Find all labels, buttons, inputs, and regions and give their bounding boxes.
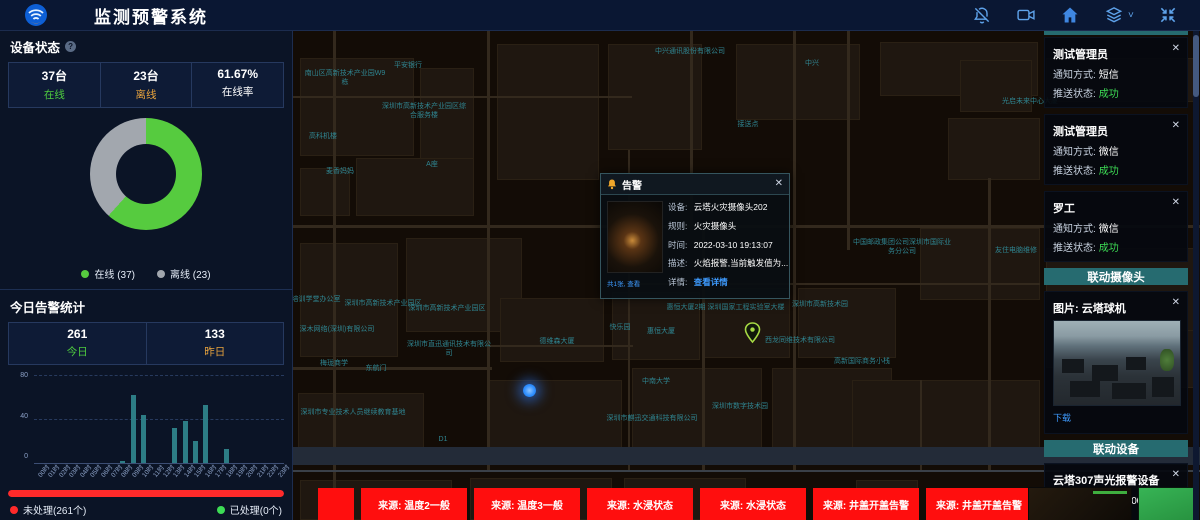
notify-card-title: 测试管理员 [1053, 46, 1179, 62]
map-building [948, 118, 1040, 180]
ytick-label: 0 [24, 453, 28, 460]
unhandled-progress-bar [8, 490, 284, 497]
bottom-alert-tile[interactable]: 来源: 温度2一般 [361, 488, 467, 520]
close-icon[interactable] [1172, 298, 1180, 308]
alarm-snapshot-image[interactable] [607, 201, 663, 273]
app-logo [24, 3, 48, 27]
hour-bar [120, 461, 125, 463]
legend-item: 离线 (23) [157, 266, 211, 281]
notify-card: 测试管理员 通知方式:短信 推送状态:成功 [1044, 37, 1188, 108]
alarm-image-caption-link[interactable]: 共1张, 查看 [607, 278, 661, 288]
hour-bar-slot [65, 375, 75, 463]
map-building [736, 44, 860, 120]
stat-value: 133 [147, 327, 284, 341]
linked-devices-header: 联动设备 [1044, 440, 1188, 457]
device-location-marker[interactable] [523, 384, 536, 397]
chevron-down-icon: ˅ [1128, 10, 1134, 21]
alarm-pin-icon[interactable] [744, 322, 761, 344]
row-label: 推送状态: [1053, 166, 1096, 177]
map-building [356, 158, 474, 216]
alarm-bell-icon [607, 179, 617, 190]
bottom-alert-tile[interactable]: 来源: 井盖开盖告警 [926, 488, 1032, 520]
home-icon[interactable] [1060, 5, 1080, 25]
alarm-detail-rows: 设备: 云塔火灾摄像头202 规则: 火灾摄像头 时间: 2022-03-10 … [668, 201, 788, 288]
alarm-popup-body: 共1张, 查看 设备: 云塔火灾摄像头202 规则: 火灾摄像头 时间: [601, 195, 789, 294]
map-building [300, 243, 398, 357]
stat-cell: 61.67% 在线率 [191, 63, 283, 107]
hour-bar-slot [242, 375, 252, 463]
device-donut [90, 118, 202, 230]
stat-label: 离线 [101, 87, 192, 102]
hour-bar [193, 441, 198, 463]
legend-text: 离线 (23) [170, 266, 211, 281]
help-icon[interactable] [65, 41, 76, 52]
hour-bar-slot [34, 375, 44, 463]
bottom-alert-tile[interactable] [318, 488, 354, 520]
close-icon[interactable] [1172, 44, 1180, 54]
row-value: 短信 [1099, 70, 1119, 81]
ytick-label: 40 [20, 413, 28, 420]
alarm-image-column: 共1张, 查看 [607, 201, 661, 288]
hour-bar-slot [201, 375, 211, 463]
scrollbar-thumb[interactable] [1193, 35, 1199, 97]
notify-card-row: 推送状态:成功 [1053, 162, 1179, 177]
map-building [300, 168, 350, 216]
hour-bar-slot [180, 375, 190, 463]
alarm-detail-value: 火灾摄像头 [694, 221, 737, 231]
unhandled-legend: 未处理(261个) [10, 502, 86, 517]
hour-bar-slot [274, 375, 284, 463]
donut-legend: 在线 (37) 离线 (23) [0, 266, 292, 281]
hour-bar-slot [169, 375, 179, 463]
alarm-detail-value: 查看详情 [694, 277, 728, 287]
alarm-popup: 告警 共1张, 查看 设备: 云塔火灾摄像头202 规则: 火灾摄像头 [600, 173, 790, 299]
notify-card-row: 通知方式:微信 [1053, 220, 1179, 235]
notify-card-row: 推送状态:成功 [1053, 85, 1179, 100]
alarm-detail-value: 2022-03-10 19:13:07 [694, 240, 773, 250]
hour-chart-yaxis: 80400 [8, 375, 28, 463]
hour-bar-slot [222, 375, 232, 463]
map-building [420, 68, 474, 162]
top-header: 监测预警系统 [0, 0, 1200, 31]
alarm-detail-row: 描述: 火焰报警,当前触发值为... [668, 258, 788, 268]
notify-card-list: 测试管理员 通知方式:短信 推送状态:成功 [1044, 37, 1188, 262]
device-status-stats: 37台 在线 23台 离线 61.67% 在线率 [8, 62, 284, 108]
map-road [292, 367, 492, 370]
progress-legend: 未处理(261个) 已处理(0个) [10, 502, 282, 517]
hour-bar [141, 415, 146, 463]
video-camera-icon[interactable] [1016, 5, 1036, 25]
unhandled-dot [10, 506, 18, 514]
camera-card: 图片: 云塔球机 下载 [1044, 291, 1188, 434]
map-building [632, 368, 762, 450]
unhandled-progress-fill [8, 490, 284, 497]
alarm-detail-row: 设备: 云塔火灾摄像头202 [668, 202, 788, 212]
map-building [920, 228, 1040, 300]
row-value: 成功 [1099, 89, 1119, 100]
close-icon[interactable] [1172, 121, 1180, 131]
row-value: 成功 [1099, 166, 1119, 177]
map-road [847, 30, 850, 250]
hour-bar-slot [211, 375, 221, 463]
video-thumbnail-green[interactable] [1138, 487, 1198, 520]
map-building [488, 380, 622, 450]
hour-bar-slot [44, 375, 54, 463]
stat-value: 261 [9, 327, 146, 341]
map-building [960, 60, 1032, 112]
hour-bar [203, 405, 208, 463]
row-label: 通知方式: [1053, 147, 1096, 158]
row-label: 通知方式: [1053, 224, 1096, 235]
stat-value: 61.67% [192, 67, 283, 81]
stat-cell: 133 昨日 [146, 323, 284, 364]
legend-item: 在线 (37) [81, 266, 135, 281]
hour-bar-slot [86, 375, 96, 463]
video-thumbnail-dark[interactable] [1028, 487, 1132, 520]
hour-bar-slot [117, 375, 127, 463]
hour-bar-slot [76, 375, 86, 463]
hour-bar [224, 449, 229, 463]
alarm-detail-label: 详情: [668, 277, 687, 287]
device-status-title: 设备状态 [10, 37, 60, 56]
row-value: 微信 [1099, 147, 1119, 158]
hour-bar [131, 395, 136, 463]
stat-value: 23台 [101, 67, 192, 84]
notify-card-row: 通知方式:微信 [1053, 143, 1179, 158]
hour-bar-slot [97, 375, 107, 463]
header-icon-group: ˅ [972, 0, 1178, 30]
alarm-detail-row: 时间: 2022-03-10 19:13:07 [668, 240, 788, 250]
hour-bar [183, 421, 188, 463]
map-road [988, 178, 991, 470]
device-card-title: 云塔307声光报警设备 [1053, 472, 1179, 488]
bottom-alert-tile[interactable]: 来源: 水浸状态 [700, 488, 806, 520]
download-link[interactable]: 下载 [1053, 411, 1071, 424]
row-label: 推送状态: [1053, 243, 1096, 254]
notify-card-row: 推送状态:成功 [1053, 239, 1179, 254]
notify-card: 测试管理员 通知方式:微信 推送状态:成功 [1044, 114, 1188, 185]
hour-bar-chart: 80400 00时01时02时03时04时05时06时07时08时09时10时1… [8, 375, 284, 482]
map-road [488, 345, 633, 347]
map-building [497, 44, 599, 180]
alarm-detail-value: 火焰报警,当前触发值为... [694, 258, 788, 268]
today-alarm-stats: 261 今日 133 昨日 [8, 322, 284, 365]
left-panel: 设备状态 37台 在线 23台 离线 61.67% 在线率 [0, 30, 293, 520]
alarm-detail-label: 设备: [668, 202, 687, 212]
hour-bar-plot [34, 375, 284, 464]
bottom-alert-tile[interactable]: 来源: 温度3一般 [474, 488, 580, 520]
alarm-detail-label: 描述: [668, 258, 687, 268]
notify-card-title: 罗工 [1053, 200, 1179, 216]
bottom-alert-tile[interactable]: 来源: 井盖开盖告警 [813, 488, 919, 520]
hour-bar-slot [159, 375, 169, 463]
stat-label: 在线 [9, 87, 100, 102]
map-building [798, 288, 896, 358]
scrollbar-track[interactable] [1193, 31, 1199, 520]
alarm-detail-label: 时间: [668, 240, 687, 250]
hour-bar [172, 428, 177, 463]
notification-off-icon[interactable] [972, 5, 992, 25]
notify-card-title: 测试管理员 [1053, 123, 1179, 139]
hour-bar-slot [128, 375, 138, 463]
alarm-popup-header: 告警 [601, 174, 789, 195]
row-value: 微信 [1099, 224, 1119, 235]
stat-label: 昨日 [147, 344, 284, 359]
stat-cell: 23台 离线 [100, 63, 192, 107]
row-value: 成功 [1099, 243, 1119, 254]
row-label: 通知方式: [1053, 70, 1096, 81]
hour-bar-slot [232, 375, 242, 463]
unhandled-label: 未处理(261个) [23, 502, 86, 517]
handled-legend: 已处理(0个) [217, 502, 282, 517]
bottom-alert-tile[interactable]: 来源: 水浸状态 [587, 488, 693, 520]
handled-label: 已处理(0个) [230, 502, 282, 517]
right-panel: 测试管理员 通知方式:短信 推送状态:成功 [1044, 30, 1188, 520]
map-building [300, 58, 414, 156]
legend-text: 在线 (37) [94, 266, 135, 281]
hour-bar-slot [107, 375, 117, 463]
stat-value: 37台 [9, 67, 100, 84]
alarm-detail-row: 规则: 火灾摄像头 [668, 221, 788, 231]
hour-bar-slot [253, 375, 263, 463]
layers-icon[interactable]: ˅ [1104, 5, 1134, 25]
legend-dot [157, 270, 165, 278]
camera-card-title: 图片: 云塔球机 [1053, 300, 1179, 316]
stat-cell: 37台 在线 [9, 63, 100, 107]
map-building [500, 298, 604, 362]
legend-dot [81, 270, 89, 278]
app-root: 南山区高新技术产业园W9栋 平安银行 深圳市高新技术产业园区综合服务楼 高科机楼… [0, 0, 1200, 520]
hour-xlabels: 00时01时02时03时04时05时06时07时08时09时10时11时12时1… [34, 464, 284, 482]
device-donut-wrap [0, 116, 292, 262]
linked-cameras-header: 联动摄像头 [1044, 268, 1188, 285]
stat-cell: 261 今日 [9, 323, 146, 364]
close-icon[interactable] [775, 179, 783, 189]
stat-label: 今日 [9, 344, 146, 359]
map-road [292, 96, 632, 98]
notify-card-row: 通知方式:短信 [1053, 66, 1179, 81]
close-icon[interactable] [1172, 470, 1180, 480]
hour-bar-slot [55, 375, 65, 463]
map-road [793, 30, 796, 470]
today-alarm-section-header: 今日告警统计 [0, 290, 292, 320]
device-status-section-header: 设备状态 [0, 30, 292, 60]
hour-bar-slot [263, 375, 273, 463]
alarm-popup-title: 告警 [622, 177, 770, 192]
today-alarm-title: 今日告警统计 [10, 297, 85, 316]
hour-bar-slot [149, 375, 159, 463]
stat-label: 在线率 [192, 84, 283, 99]
alarm-detail-label: 规则: [668, 221, 687, 231]
map-building [852, 380, 1040, 448]
close-icon[interactable] [1172, 198, 1180, 208]
bottom-alert-bar: 来源: 温度2一般 来源: 温度3一般 来源: 水浸状态 来源: 水浸状态 来源… [318, 488, 1039, 520]
notify-card: 罗工 通知方式:微信 推送状态:成功 [1044, 191, 1188, 262]
ytick-label: 80 [20, 372, 28, 379]
hour-bar-slot [190, 375, 200, 463]
handled-dot [217, 506, 225, 514]
collapse-icon[interactable] [1158, 5, 1178, 25]
map-building [612, 292, 700, 360]
row-label: 推送状态: [1053, 89, 1096, 100]
page-title: 监测预警系统 [94, 3, 208, 28]
camera-snapshot-image[interactable] [1053, 320, 1181, 406]
alarm-detail-row: 详情: 查看详情 [668, 277, 788, 287]
plant-decor [1160, 349, 1174, 371]
hour-bar-slot [138, 375, 148, 463]
alarm-detail-value: 云塔火灾摄像头202 [694, 202, 768, 212]
